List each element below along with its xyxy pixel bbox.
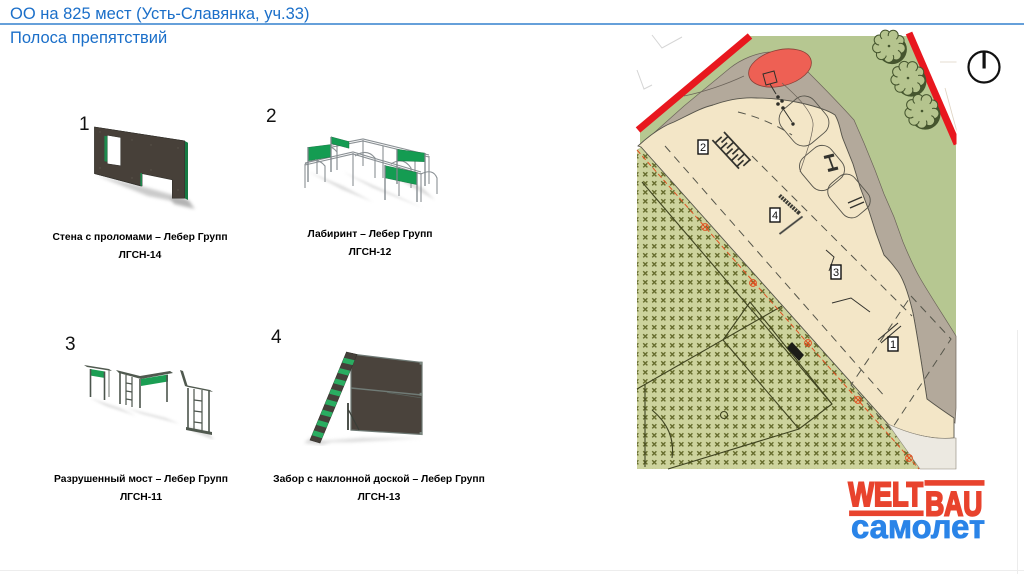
- svg-text:самолет: самолет: [851, 508, 985, 544]
- svg-text:1: 1: [890, 339, 896, 351]
- svg-text:3: 3: [833, 267, 839, 279]
- svg-text:2: 2: [700, 142, 706, 154]
- svg-text:4: 4: [772, 210, 778, 222]
